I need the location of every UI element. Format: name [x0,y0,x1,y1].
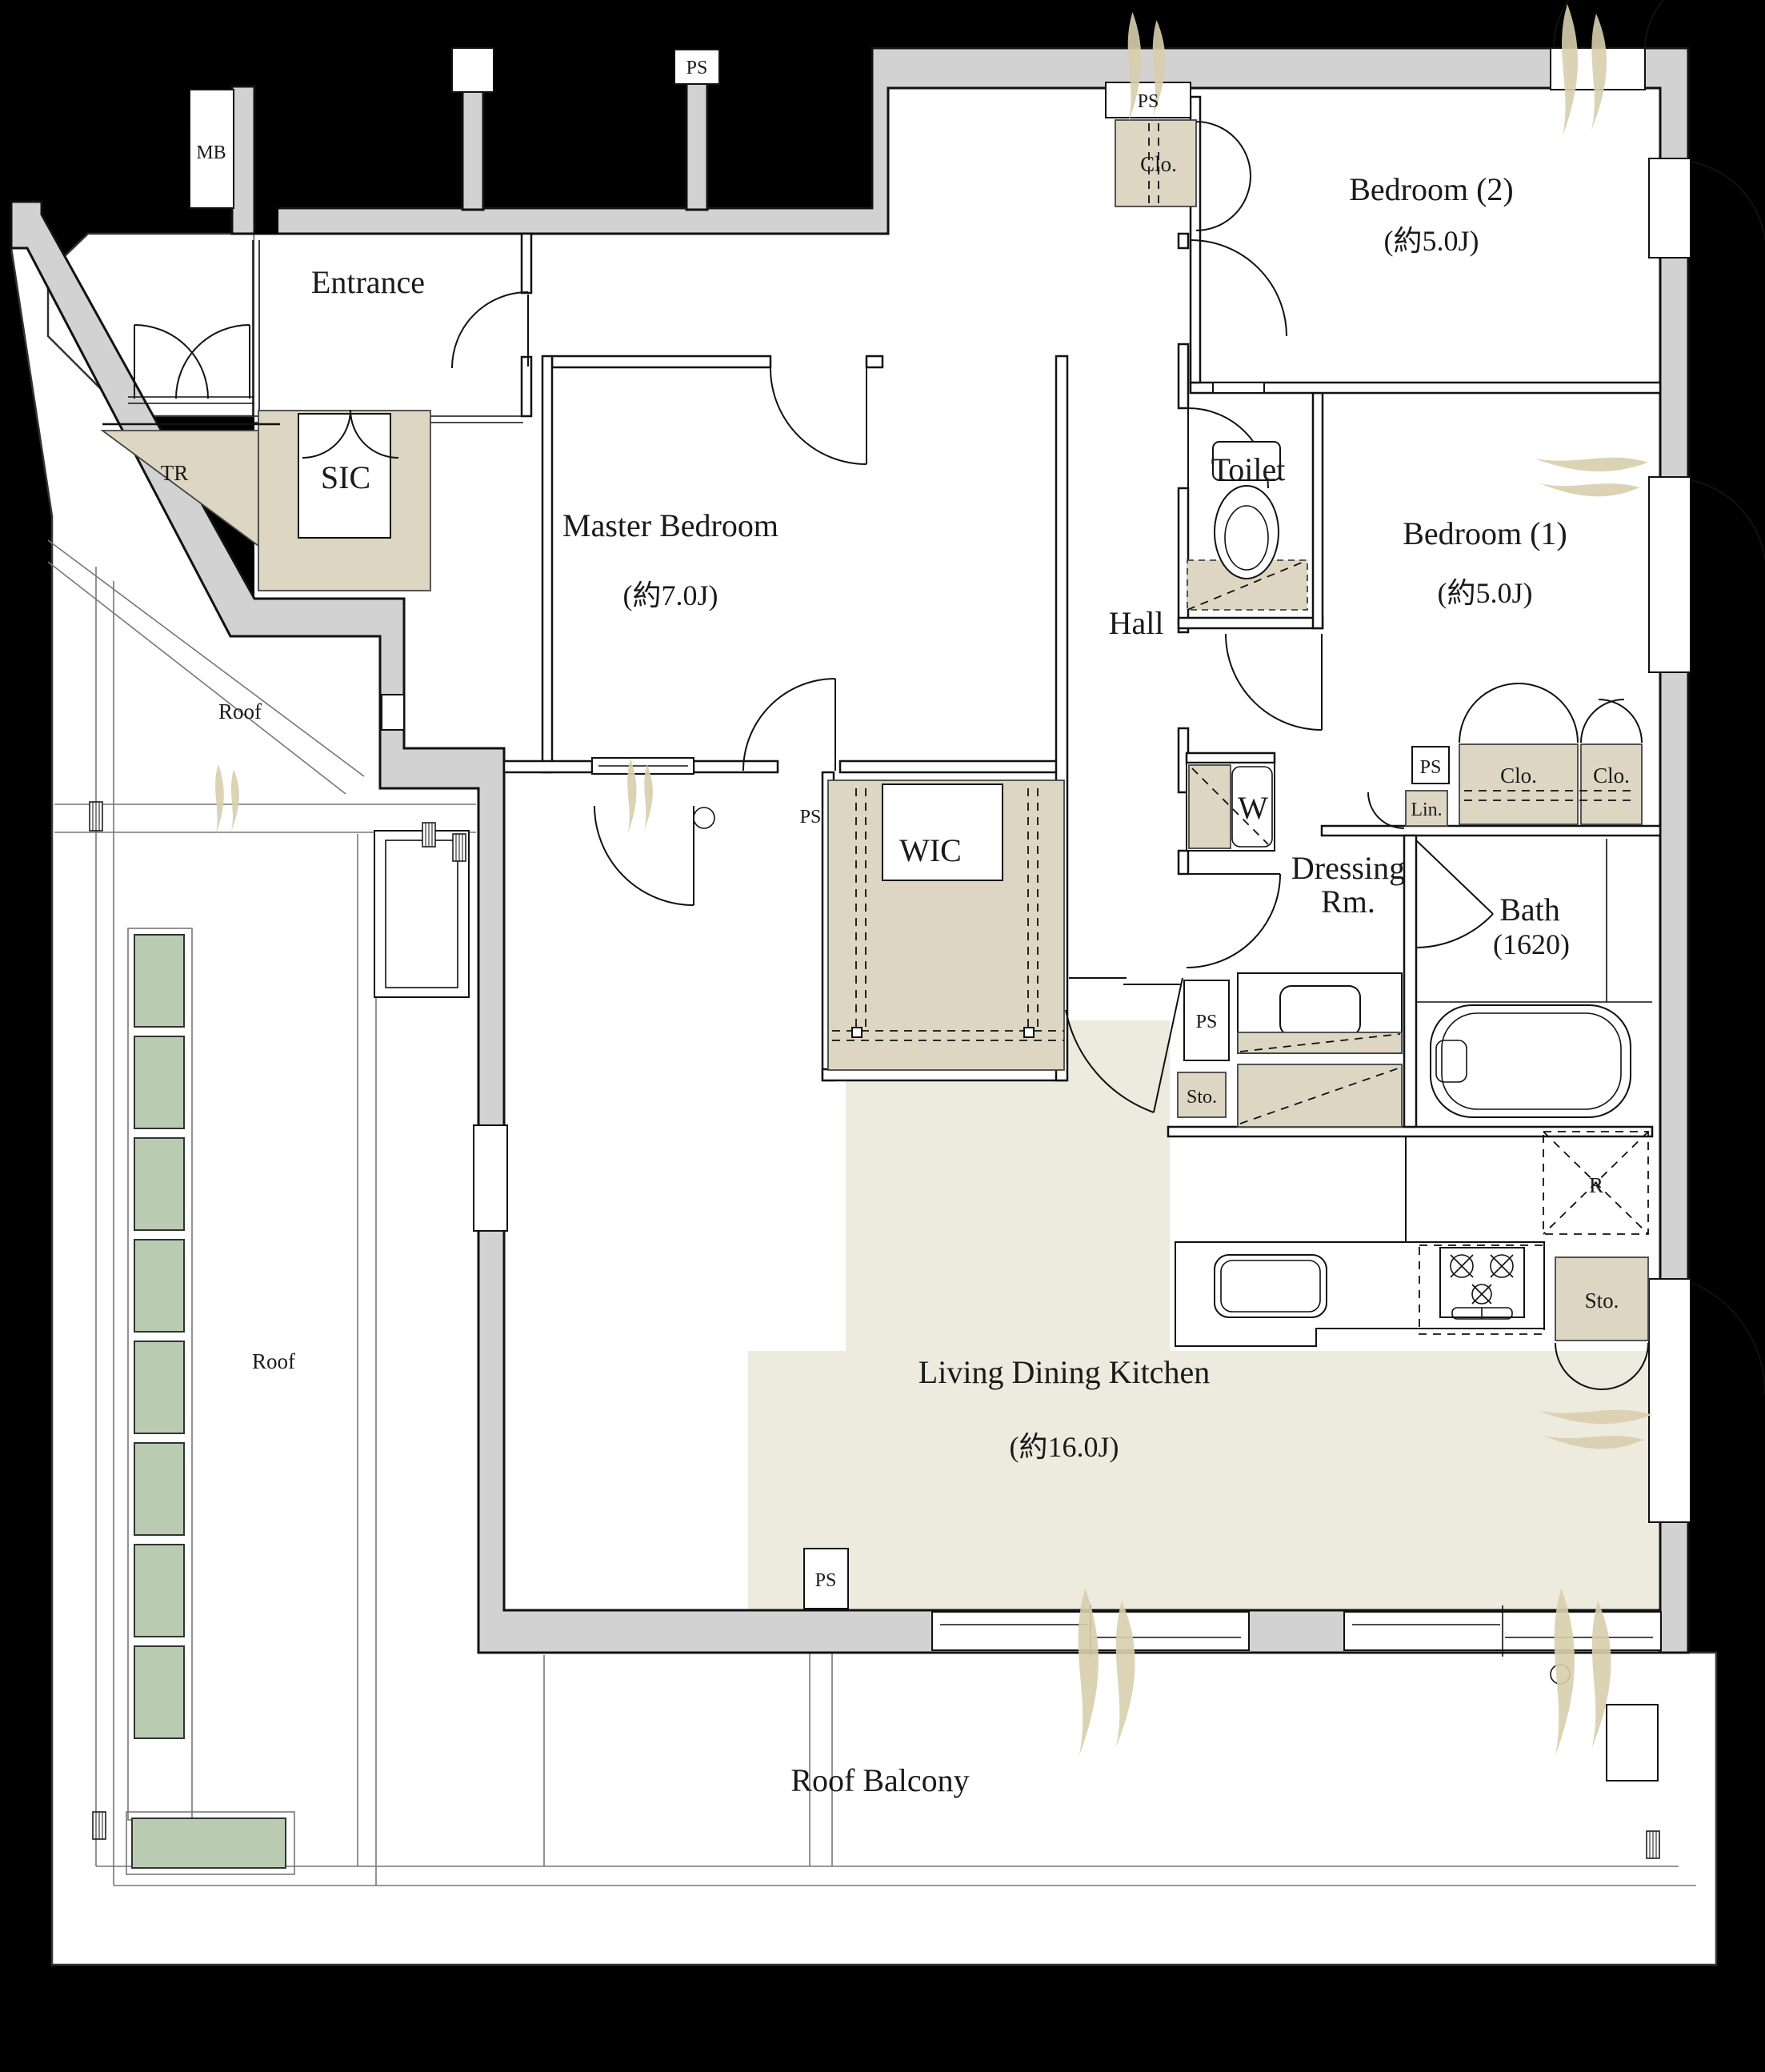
label-ldk: Living Dining Kitchen [919,1354,1210,1390]
label-ps-washcorner: PS [1420,757,1442,778]
label-ldk-size: (約16.0J) [1010,1431,1119,1463]
label-bedroom2-size: (約5.0J) [1384,225,1479,257]
label-mb: MB [196,142,226,163]
label-lin: Lin. [1411,800,1442,820]
label-clo-b1-large: Clo. [1500,763,1537,788]
label-refrigerator: R [1589,1173,1603,1197]
label-sic: SIC [321,459,370,495]
label-ps-ldk: PS [815,1570,837,1591]
shaft-band-mb [232,86,254,234]
label-dressing-1: Dressing [1291,850,1405,886]
label-dressing-2: Rm. [1321,884,1375,920]
label-bedroom1: Bedroom (1) [1403,515,1567,551]
label-roof-balcony: Roof Balcony [790,1762,969,1798]
mb-wall-stub-bottom [181,173,190,208]
label-ps-washroom: PS [1196,1012,1218,1032]
label-entrance: Entrance [311,264,425,300]
floor-plan-canvas: MB Entrance TR SIC Roof Roof Roof Balcon… [0,0,1765,2072]
shaft-band-ps-top [686,83,707,210]
label-ps-wic: PS [800,807,822,828]
label-tr: TR [161,461,189,485]
label-wic: WIC [899,832,962,868]
label-ps-top: PS [686,58,708,78]
label-roof-lower: Roof [252,1349,295,1373]
label-bath-size: (1620) [1493,928,1570,960]
wall-black-corner [254,206,278,234]
label-bedroom2: Bedroom (2) [1349,171,1514,207]
label-ps-b2: PS [1138,91,1159,112]
label-clo-b2: Clo. [1140,152,1177,176]
label-master-size: (約7.0J) [623,579,718,611]
mb-wall-stub-top [181,86,190,131]
label-sto-kitchen: Sto. [1585,1288,1619,1313]
label-sto-washroom: Sto. [1187,1087,1217,1108]
floor-plan-page: MB Entrance TR SIC Roof Roof Roof Balcon… [0,0,1765,2072]
vent-shaft-box [452,48,494,92]
label-clo-b1-small: Clo. [1593,763,1630,788]
label-washer: W [1238,790,1268,826]
label-bedroom1-size: (約5.0J) [1438,577,1533,609]
label-roof-upper: Roof [218,699,262,723]
label-hall: Hall [1109,605,1164,641]
label-master-bedroom: Master Bedroom [562,507,778,543]
label-toilet: Toilet [1211,451,1286,487]
label-bath: Bath [1499,892,1560,928]
shaft-band-vent [462,90,483,210]
balcony-equipment-box [1607,1705,1658,1781]
